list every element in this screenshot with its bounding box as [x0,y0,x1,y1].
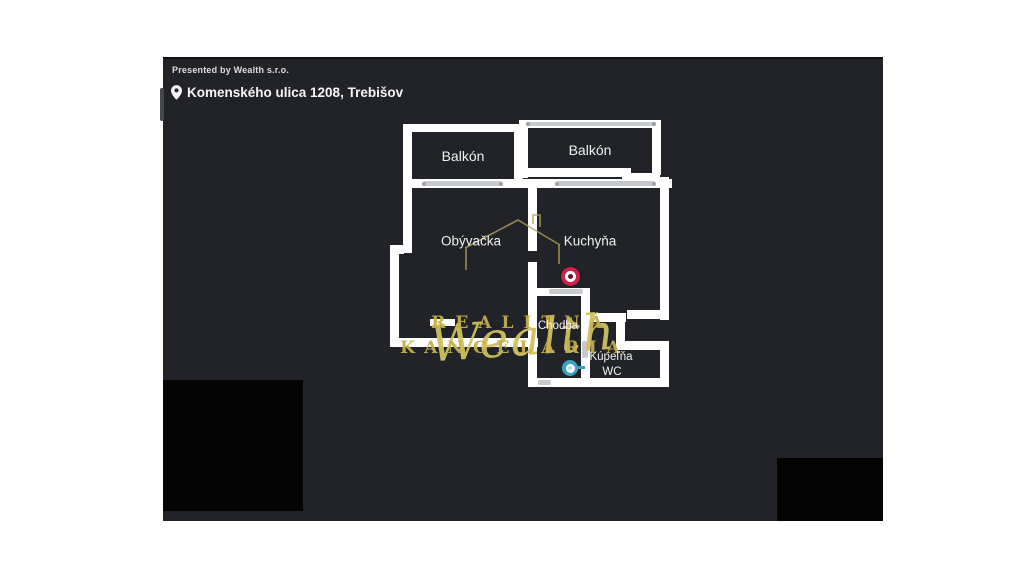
wall [519,168,631,177]
red-photo-point-marker[interactable] [561,267,580,286]
teal-photo-point-marker[interactable] [562,360,578,376]
wall [652,120,661,175]
entry-door-line [538,380,551,385]
wall [403,179,412,253]
wall [660,177,669,320]
room-label-balkon-right: Balkón [569,142,612,158]
black-mask-right [777,458,883,521]
room-label-obyvacka: Obývačka [441,234,501,249]
window-line [423,181,502,186]
floorplan-viewer-panel: Presented by Wealth s.r.o. Komenského ul… [163,57,883,521]
room-label-chodba: Chodba [538,320,578,332]
wall [403,124,523,132]
page: Presented by Wealth s.r.o. Komenského ul… [0,0,1024,576]
wall [390,245,399,347]
balcony-railing-line [527,122,655,126]
room-label-wc: WC [602,366,621,378]
door-line [549,289,583,294]
wall [627,310,669,319]
wall [660,341,669,387]
black-mask-left [163,380,303,511]
wall [403,124,412,186]
room-label-kuchyna: Kuchyňa [564,234,617,249]
room-label-balkon-left: Balkón [442,148,485,164]
watermark-line1: REALITNÁ [431,313,613,333]
room-label-kupelna: Kúpeľňa [589,351,632,363]
window-line [556,181,655,186]
